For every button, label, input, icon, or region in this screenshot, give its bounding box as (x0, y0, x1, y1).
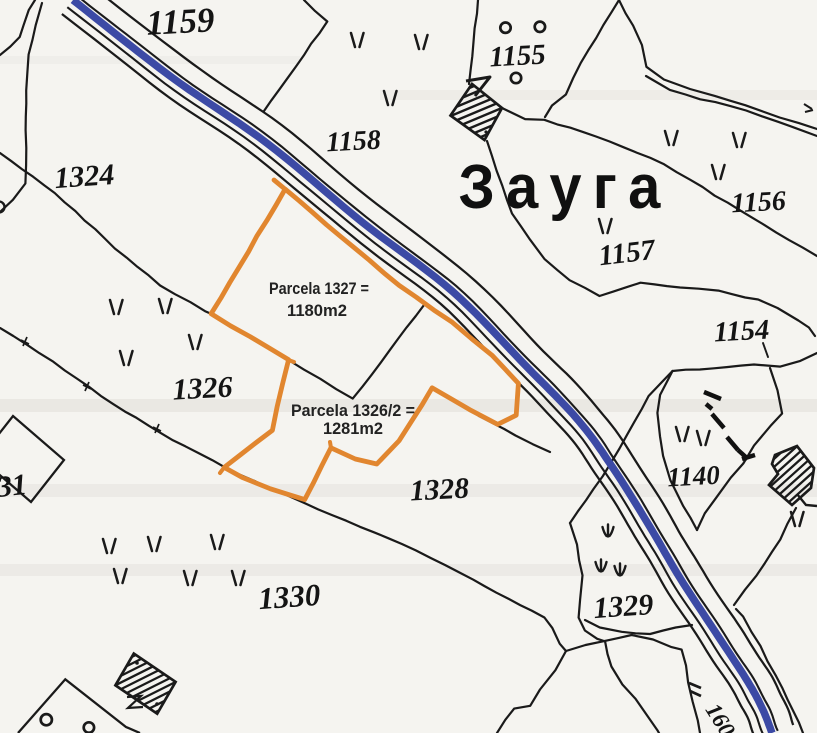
svg-text:1158: 1158 (326, 125, 382, 159)
svg-text:1155: 1155 (489, 39, 547, 74)
svg-text:1331: 1331 (0, 468, 29, 507)
svg-text:1159: 1159 (145, 0, 215, 43)
svg-text:Зауга: Зауга (459, 153, 672, 222)
svg-text:Parcela 1326/2 =: Parcela 1326/2 = (291, 402, 415, 420)
svg-text:Parcela 1327 =: Parcela 1327 = (269, 279, 369, 298)
svg-text:1281m2: 1281m2 (323, 420, 383, 438)
svg-text:1156: 1156 (731, 186, 787, 220)
svg-text:1328: 1328 (409, 472, 470, 507)
svg-text:1329: 1329 (592, 588, 654, 625)
svg-text:1140: 1140 (667, 460, 722, 493)
svg-text:1330: 1330 (257, 577, 321, 616)
svg-text:1324: 1324 (53, 158, 115, 195)
svg-text:1326: 1326 (172, 370, 234, 406)
svg-text:1154: 1154 (713, 315, 770, 349)
svg-text:1180m2: 1180m2 (287, 301, 347, 320)
